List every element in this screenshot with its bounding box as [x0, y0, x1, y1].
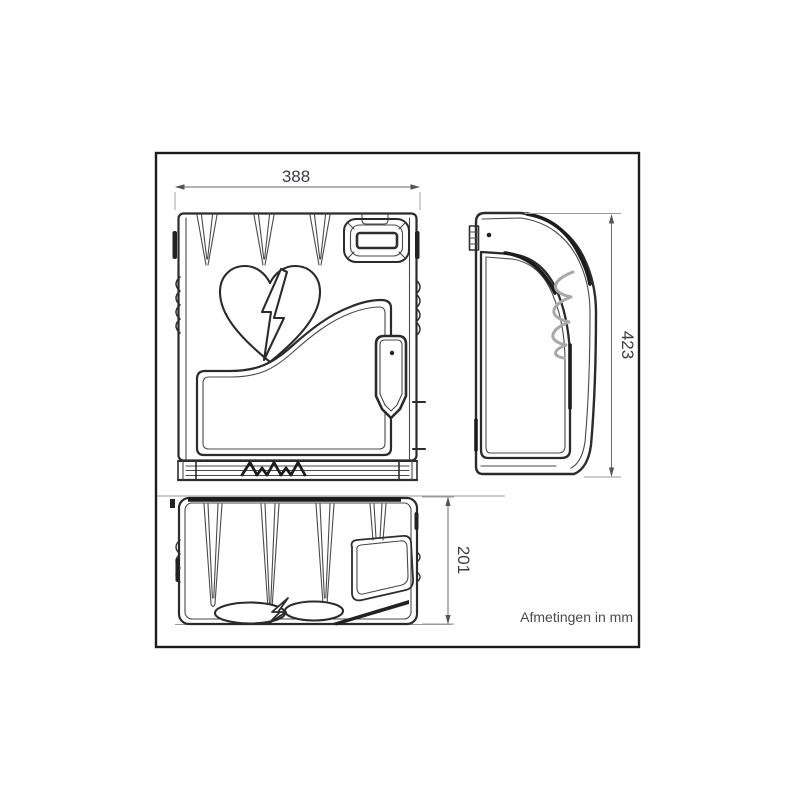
latch-pin-icon [390, 351, 394, 355]
heart-edge-right-icon [285, 602, 343, 621]
aed-cabinet-drawing: 388 [0, 0, 800, 800]
front-latch [376, 336, 406, 418]
hinge-right-icon [415, 231, 420, 259]
hinge-left-icon [173, 231, 178, 259]
technical-drawing-page: 388 [0, 0, 800, 800]
units-note: Afmetingen in mm [520, 609, 633, 625]
dimension-height-label: 423 [618, 331, 637, 359]
bracket-pin-icon [487, 233, 492, 238]
top-left-tab-icon [170, 499, 175, 508]
top-dark-tab-right-icon [415, 512, 419, 530]
dimension-width-label: 388 [282, 167, 310, 186]
top-dark-tab-left-icon [176, 558, 180, 582]
dimension-depth-label: 201 [454, 546, 473, 574]
